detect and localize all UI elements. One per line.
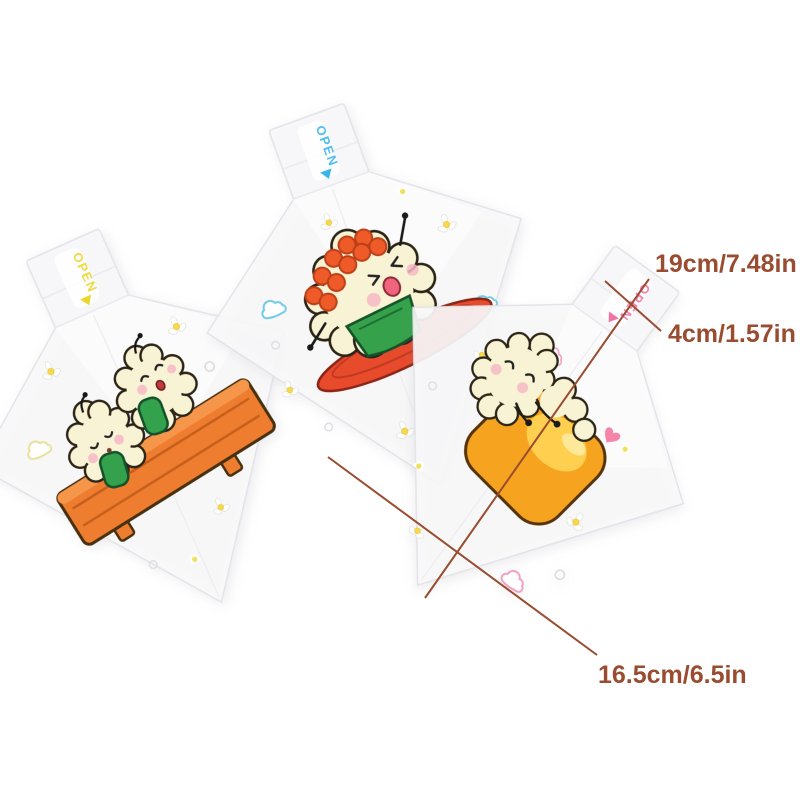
product-photo-stage: OPEN [0, 0, 800, 800]
width-measurement-label: 16.5cm/6.5in [598, 661, 747, 689]
length-measurement-label: 19cm/7.48in [655, 250, 797, 278]
